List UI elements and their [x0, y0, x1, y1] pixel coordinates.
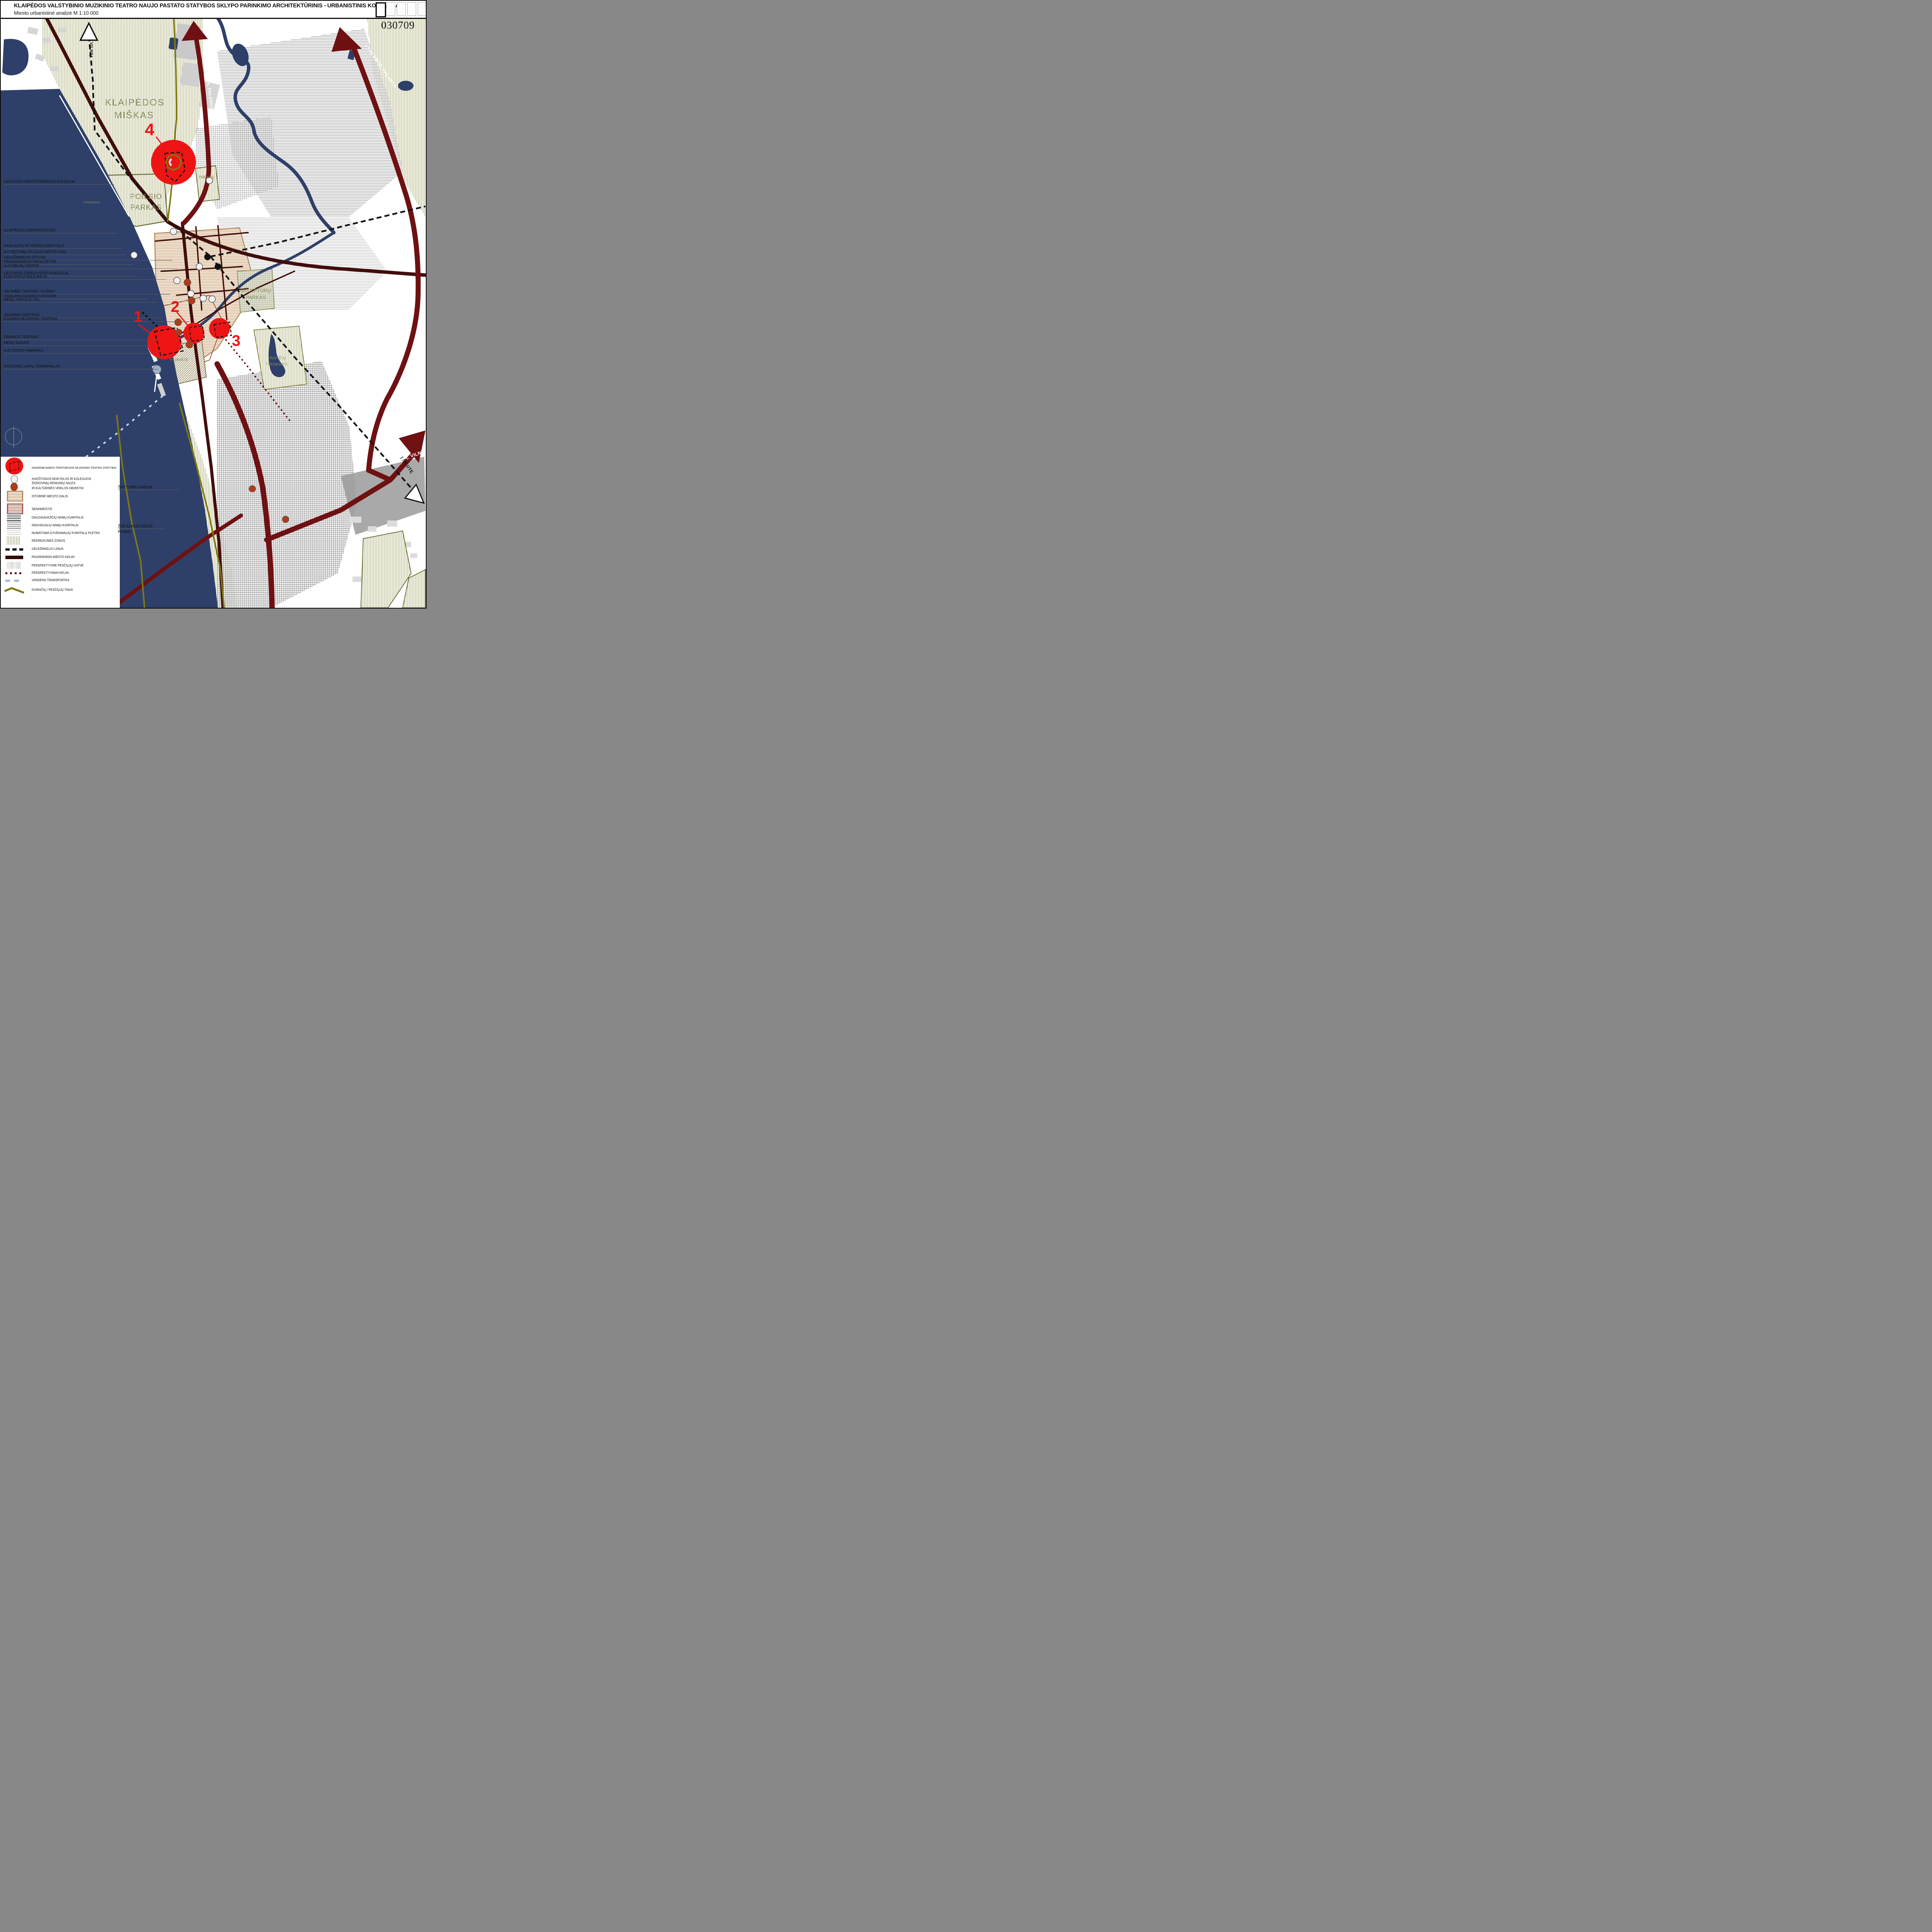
- sheet-tab-4[interactable]: [407, 2, 416, 16]
- poilsio-label-1: POILSIO: [128, 193, 164, 201]
- legend-label: VANDENS TRANSPORTAS: [32, 578, 70, 582]
- page-title: KLAIPĖDOS VALSTYBINIO MUZIKINIO TEATRO N…: [14, 3, 403, 9]
- map-legend: NAGRINĖJAMOS TERITORIJOS MUZIKINIO TEATR…: [1, 457, 120, 608]
- north-compass: Š: [5, 422, 22, 445]
- competition-map-sheet: KLAIPĖDOS VALSTYBINIO MUZIKINIO TEATRO N…: [0, 0, 427, 609]
- object-label: LIETUVOS KRIKŠČIONIŠKOJI KOLEGIJA: [4, 180, 114, 185]
- sheet-tab-2[interactable]: [386, 2, 395, 16]
- legend-row: DVIRAČIŲ / PĖSČIŲJŲ TAKAI: [1, 585, 120, 597]
- legend-label: AUKŠTOSIOS MOKYKLOS IR KOLEGIJOS: [32, 477, 91, 481]
- legend-label: SENAMIESTIS: [32, 507, 52, 511]
- legend-label: NUMATOMA GYVENAMŲJŲ KVARTALŲ PLĖTRA: [32, 531, 100, 535]
- object-label: ESAMAS MUZIKINIS TEATRAS: [4, 317, 189, 322]
- svyturio-arena-label: ŠVYTURIO ARENA: [118, 485, 179, 490]
- sheet-tab-5[interactable]: [418, 2, 427, 16]
- forest-label-2: MIŠKAS: [105, 110, 163, 121]
- bike-path-legend-icon: [4, 586, 26, 594]
- sheet-tab-1[interactable]: [376, 2, 386, 17]
- object-label: KRUIZINIŲ LAIVŲ TERMIINALAS: [4, 364, 158, 369]
- oldtown-legend-icon: [7, 503, 23, 514]
- historic-legend-icon: [7, 491, 23, 502]
- legend-row: NAGRINĖJAMOS TERITORIJOS MUZIKINIO TEATR…: [1, 457, 120, 478]
- poilsio-label-2: PARKAS: [128, 204, 164, 212]
- site-4-circle: [151, 140, 196, 185]
- site-legend-icon: [5, 457, 23, 474]
- water-transport-legend-icon: [5, 580, 23, 582]
- legend-label: DVIRAČIŲ / PĖSČIŲJŲ TAKAI: [32, 588, 73, 592]
- object-label: MENŲ FAKULTETAS: [4, 298, 156, 303]
- object-label: KU TĘSTINIŲ STUDIJU INSTITUTAS: [4, 250, 126, 255]
- direction-vilnius-label: Į VILNIŲ: [89, 39, 94, 57]
- sheet-tab-3[interactable]: [397, 2, 406, 16]
- piliaviete-label: PILIAVIETĖ: [170, 358, 188, 362]
- forest-label-1: KLAIPĖDOS: [105, 97, 163, 108]
- legend-label: PAGRINDINIAI MIESTO KELIAI: [32, 555, 75, 559]
- sculpture-park-label-1: SKULPTŪRŲ: [237, 287, 274, 293]
- pedestrian-street-legend-icon: [7, 562, 21, 569]
- object-label: DRAMOS TEATRAS: [4, 335, 158, 340]
- legend-label: PERSPEKTYVINĖ PĖSČIŲJŲ GATVĖ: [32, 564, 83, 568]
- legend-label: INDIVIDUALIŲ NAMŲ KVARTALAI: [32, 524, 78, 527]
- legend-label: GELEŽINKELIO LINIJA: [32, 547, 63, 551]
- trinyciu-label-2: TVENKINYS: [263, 362, 291, 367]
- title-bar: KLAIPĖDOS VALSTYBINIO MUZIKINIO TEATRO N…: [1, 1, 426, 19]
- object-label: MENŲ DOKAS: [4, 341, 151, 346]
- site-marker-4: 4: [145, 121, 154, 138]
- legend-label: IR KULTŪRINĖS VEIKLOS OBJEKTAI: [32, 486, 83, 490]
- railway-legend-icon: [5, 548, 23, 551]
- object-label: AUTOBUSŲ STOTIS: [4, 264, 178, 269]
- legend-label: NAGRINĖJAMOS TERITORIJOS MUZIKINIO TEATR…: [32, 466, 116, 470]
- recreation-legend-icon: [7, 536, 21, 545]
- hall-legend-icon: [10, 483, 18, 491]
- perspective-road-legend-icon: [5, 572, 23, 574]
- sheet-code: 030709: [375, 19, 421, 31]
- legend-label: DAUGIAAUKŠČIŲ NAMŲ KVARTALAI: [32, 516, 83, 520]
- object-label: KULTŪROS FABRIKAS: [4, 349, 166, 354]
- site-marker-3: 3: [232, 333, 240, 349]
- site-marker-2: 2: [171, 299, 179, 315]
- highrise-legend-icon: [7, 513, 21, 522]
- page-subtitle: Miesto urbanistinė analizė M 1:10 000: [14, 10, 99, 16]
- trekas-label: TREKAS: [199, 175, 214, 180]
- object-label: KLAIPĖDOS UNIVERSITETAS: [4, 228, 118, 233]
- compass-ring-icon: [5, 428, 22, 445]
- houses-legend-icon: [7, 521, 21, 529]
- object-label: KONCERTŲ SALĖ 600 vt.: [4, 275, 166, 280]
- legend-label: ŽIŪROVINIŲ RENGINIŲ SALĖS: [32, 481, 75, 485]
- legend-label: REKREACINĖS ZONOS: [32, 539, 65, 543]
- object-label: PASLAUGŲ IR VERSLO MOKYKLA: [4, 244, 122, 249]
- planned-legend-icon: [7, 529, 21, 537]
- trinyciu-label-1: TRINYČIŲ: [263, 356, 291, 361]
- stadionas-label: STADIONAS: [83, 201, 100, 204]
- zveju-rumai-label-1: ŽVEJŲ KULTŪROS: [118, 524, 165, 529]
- sculpture-park-label-2: PARKAS: [237, 294, 274, 300]
- legend-label: PERSPEKTYVINIAI KELIAI: [32, 571, 69, 575]
- main-road-legend-icon: [5, 556, 23, 559]
- zveju-rumai-label-2: RŪMAI: [118, 529, 131, 534]
- school-legend-icon: [11, 475, 18, 483]
- legend-label: ISTORINĖ MIESTO DALIS: [32, 495, 68, 498]
